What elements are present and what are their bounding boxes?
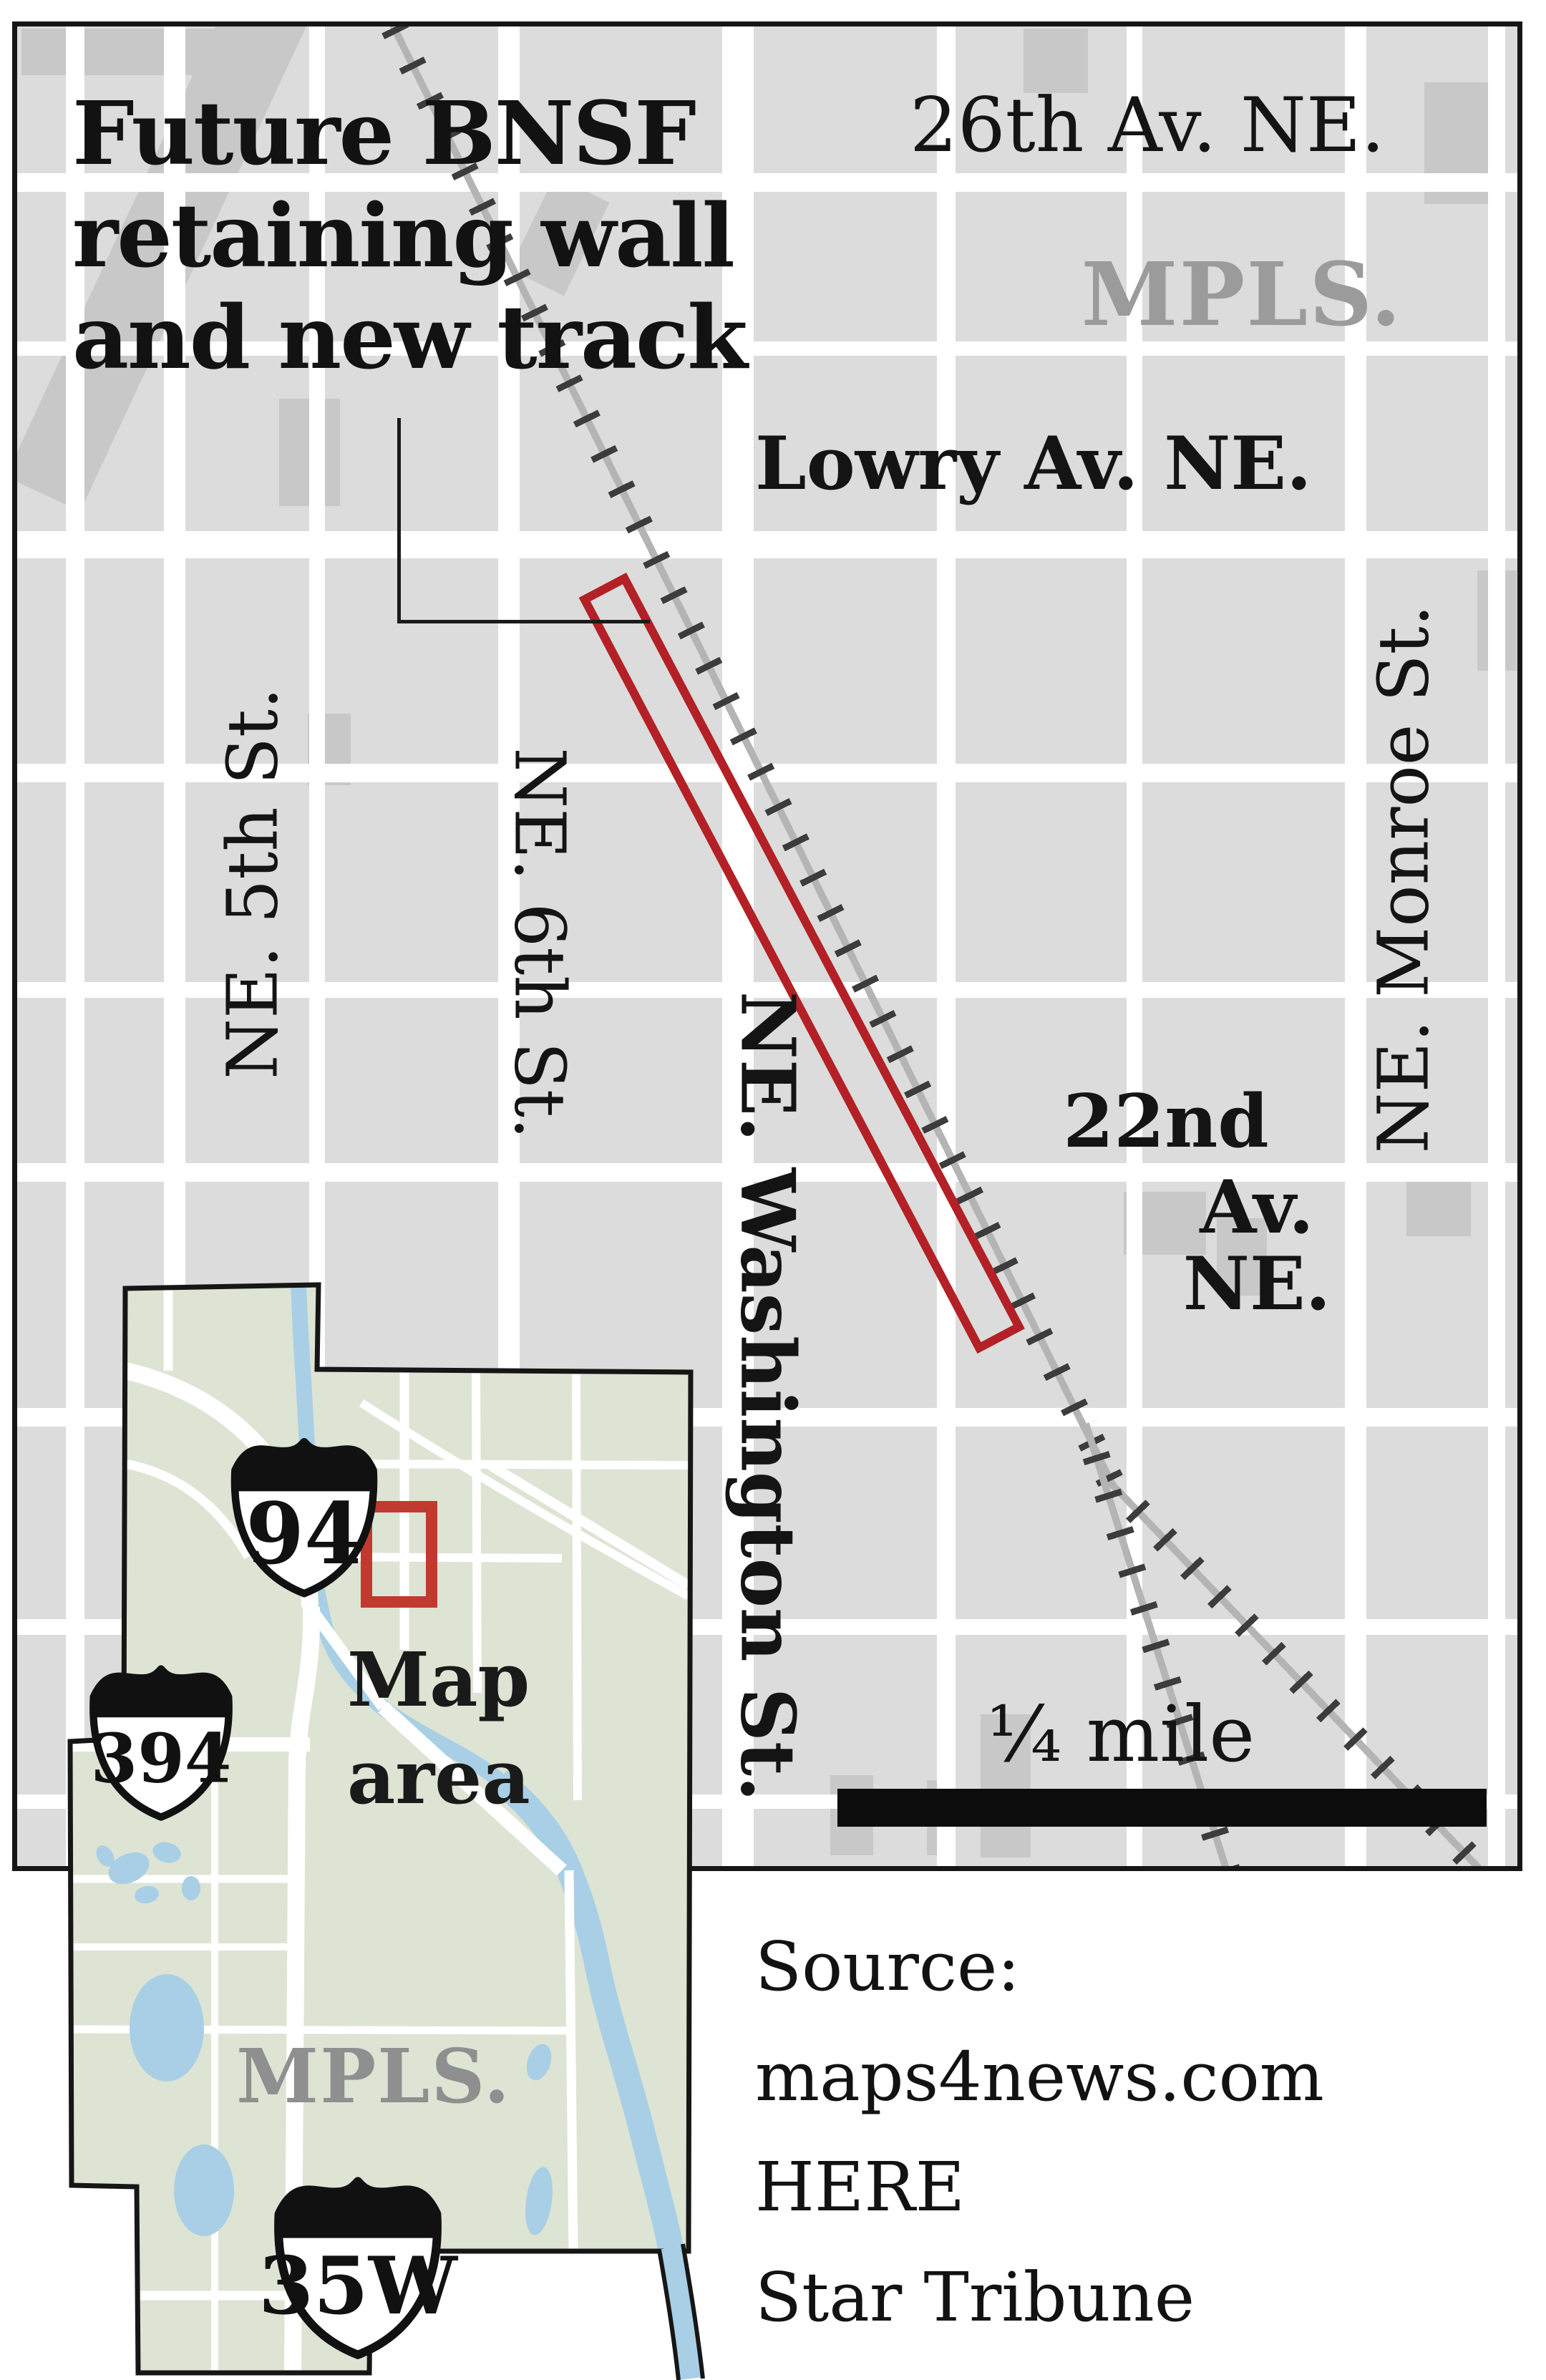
street-label-ne-5th: NE. 5th St. bbox=[213, 687, 293, 1079]
interstate-35w-shield: 35W bbox=[258, 2181, 459, 2354]
shield-number: 394 bbox=[91, 1719, 232, 1798]
title-line: and new track bbox=[72, 286, 747, 389]
street-lowry-av bbox=[17, 531, 1517, 558]
inset-locator-map: 94 394 35W Map area MPLS. bbox=[61, 1249, 712, 2380]
interstate-94-shield: 94 bbox=[234, 1442, 374, 1593]
city-label-mpls: MPLS. bbox=[1027, 248, 1457, 340]
map-area-label-line2: area bbox=[347, 1733, 530, 1821]
inset-city-label-mpls: MPLS. bbox=[236, 2032, 511, 2120]
title-line: retaining wall bbox=[72, 185, 747, 287]
street bbox=[1488, 26, 1505, 1866]
source-line: maps4news.com HERE bbox=[755, 2023, 1546, 2243]
shield-number: 35W bbox=[258, 2240, 459, 2333]
map-area-label-line1: Map bbox=[347, 1636, 530, 1724]
interstate-394-shield: 394 bbox=[91, 1669, 232, 1817]
street-label-ne-6th: NE. 6th St. bbox=[500, 747, 580, 1140]
callout-line-vertical bbox=[397, 418, 401, 623]
callout-line-horizontal bbox=[397, 620, 650, 623]
street-label-22nd-line2: Av. NE. bbox=[1114, 1170, 1400, 1323]
source-credit: Source: maps4news.com HERE Star Tribune bbox=[755, 1913, 1546, 2354]
scale-bar bbox=[837, 1789, 1487, 1827]
source-line: Source: bbox=[755, 1913, 1546, 2023]
graphic-title: Future BNSF retaining wall and new track bbox=[72, 82, 747, 389]
scale-label: ¼ mile bbox=[942, 1694, 1300, 1775]
street bbox=[937, 26, 956, 1866]
street-label-26th-av: 26th Av. NE. bbox=[861, 86, 1434, 165]
street-label-22nd-line1: 22nd bbox=[1023, 1084, 1309, 1160]
street-label-washington: NE. Washington St. bbox=[724, 991, 812, 1802]
shield-number: 94 bbox=[245, 1485, 363, 1583]
street-label-monroe: NE. Monroe St. bbox=[1363, 605, 1444, 1154]
street-label-lowry: Lowry Av. NE. bbox=[755, 426, 1312, 502]
title-line: Future BNSF bbox=[72, 82, 747, 185]
source-line: Star Tribune bbox=[755, 2243, 1546, 2354]
